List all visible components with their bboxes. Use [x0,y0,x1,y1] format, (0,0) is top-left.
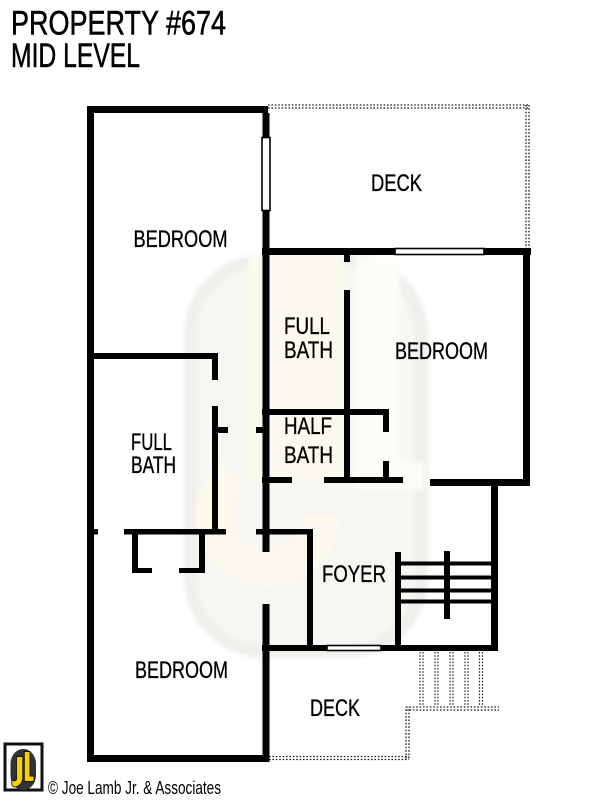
svg-text:BATH: BATH [284,442,333,469]
svg-text:© Joe Lamb Jr. & Associates: © Joe Lamb Jr. & Associates [48,778,221,798]
svg-text:DECK: DECK [310,695,360,722]
svg-text:BATH: BATH [131,452,176,479]
svg-text:MID LEVEL: MID LEVEL [11,37,140,75]
svg-text:FOYER: FOYER [322,561,386,588]
svg-text:BEDROOM: BEDROOM [134,226,228,253]
svg-text:BATH: BATH [284,337,333,364]
svg-text:FULL: FULL [284,313,330,340]
svg-text:BEDROOM: BEDROOM [135,657,228,684]
svg-text:BEDROOM: BEDROOM [395,338,488,365]
svg-text:DECK: DECK [371,170,422,197]
svg-text:HALF: HALF [284,413,332,440]
